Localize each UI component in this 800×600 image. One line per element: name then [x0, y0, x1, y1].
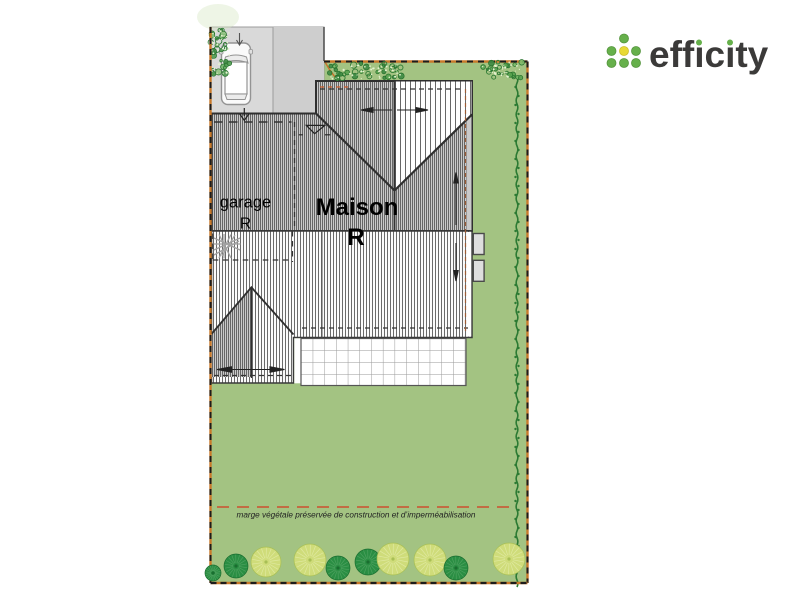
svg-text:Maison: Maison — [316, 194, 399, 221]
svg-text:R: R — [347, 224, 364, 251]
svg-text:R: R — [240, 216, 251, 233]
svg-text:marge végétale préservée de co: marge végétale préservée de construction… — [237, 511, 476, 520]
svg-text:garage: garage — [220, 194, 271, 212]
svg-text:effıcıty: effıcıty — [649, 34, 769, 75]
